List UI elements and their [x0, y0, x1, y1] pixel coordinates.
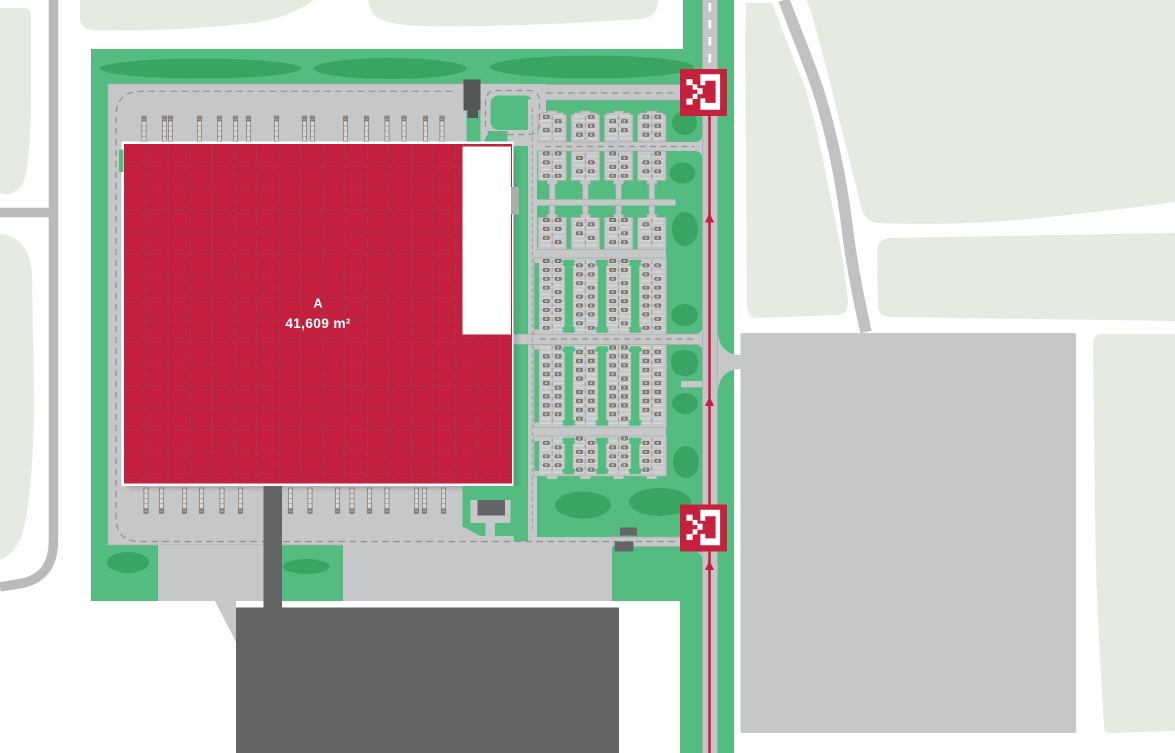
svg-text:A: A [313, 297, 322, 311]
svg-text:41,609 m²: 41,609 m² [285, 316, 351, 331]
